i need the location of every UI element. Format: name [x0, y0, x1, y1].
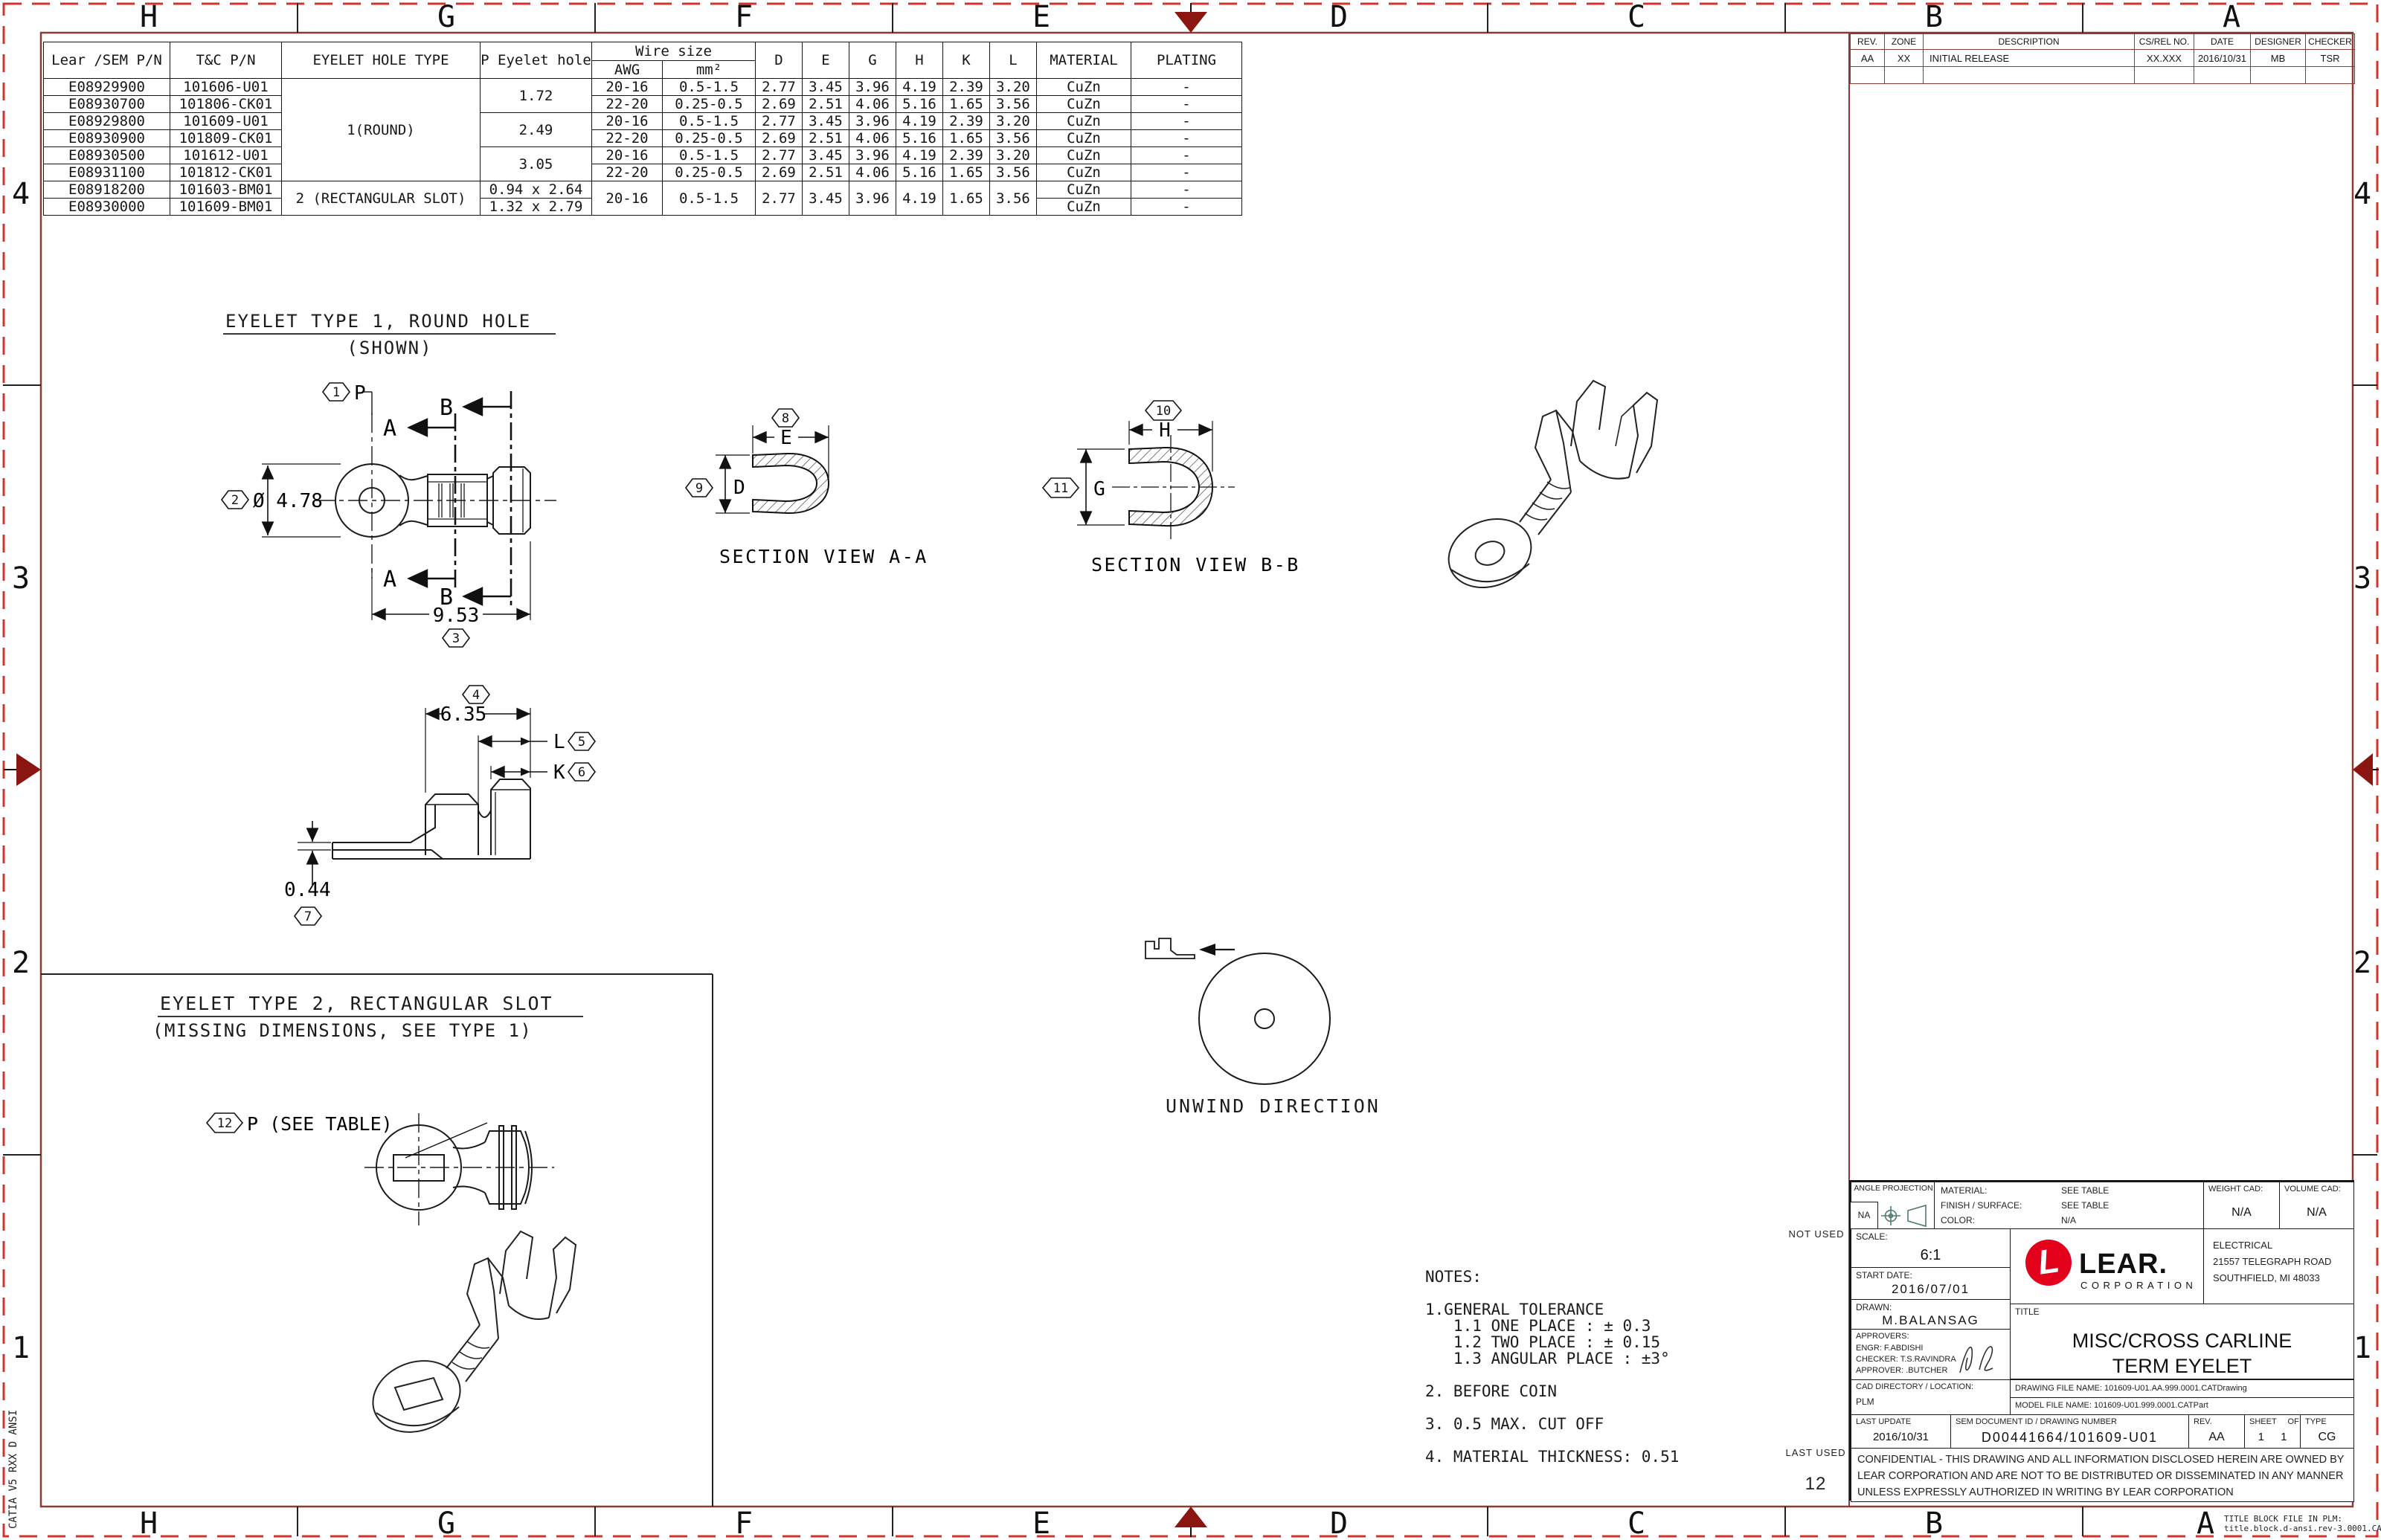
drawn-label: DRAWN: — [1856, 1302, 1892, 1312]
dim-dia-label: Ø 4.78 — [253, 490, 323, 512]
lear-brand-name: LEAR. — [2079, 1249, 2168, 1280]
type1-dimensions: A A B B P Ø 4.78 9.53 — [253, 382, 530, 627]
svg-text:8: 8 — [782, 411, 789, 426]
color-label: COLOR: — [1941, 1215, 1975, 1225]
type-cell: TYPE CG — [2300, 1414, 2354, 1449]
type1-front-view — [315, 413, 556, 579]
volume-cad-value: N/A — [2280, 1206, 2353, 1220]
svg-text:9: 9 — [695, 481, 703, 496]
svg-text:6: 6 — [578, 765, 585, 780]
type2-subtitle: (MISSING DIMENSIONS, SEE TYPE 1) — [152, 1020, 532, 1041]
not-used-flag: NOT USED — [1785, 1228, 1848, 1240]
angle-projection-na-cell: NA — [1851, 1202, 1878, 1230]
material-label: MATERIAL: — [1941, 1185, 1987, 1196]
dept-label: ELECTRICAL — [2213, 1240, 2272, 1251]
section-view-b: H G SECTION VIEW B-B — [1077, 419, 1300, 576]
section-label-b-top: B — [440, 395, 453, 421]
svg-text:4: 4 — [472, 688, 480, 703]
approver-approver: APPROVER: .BUTCHER — [1856, 1366, 1947, 1375]
material-value: SEE TABLE — [2061, 1185, 2109, 1196]
scale-cell: SCALE: 6:1 — [1851, 1228, 2011, 1268]
scale-label: SCALE: — [1856, 1231, 1888, 1242]
approver-checker: CHECKER: T.S.RAVINDRA — [1856, 1355, 1956, 1364]
dim-d-label: D — [733, 477, 745, 499]
parts-table: Lear /SEM P/N T&C P/N EYELET HOLE TYPE P… — [43, 42, 1242, 216]
type-value: CG — [2301, 1431, 2353, 1444]
address-line2: SOUTHFIELD, MI 48033 — [2213, 1272, 2320, 1283]
sheet-cell: SHEET OF 1 1 — [2244, 1414, 2301, 1449]
title-cell: TITLE MISC/CROSS CARLINE TERM EYELET — [2010, 1304, 2354, 1379]
dim-g-label: G — [1093, 478, 1105, 500]
header-row-1: Lear /SEM P/N T&C P/N EYELET HOLE TYPE P… — [44, 42, 1242, 61]
weight-cad-label: WEIGHT CAD: — [2208, 1185, 2263, 1193]
dim-l-label: L — [553, 731, 565, 753]
zone-row-right-4: 4 — [2348, 177, 2377, 211]
zone-row-left-2: 2 — [6, 946, 36, 980]
rev-cell: REV. AA — [2188, 1414, 2245, 1449]
revision-row: AA XX INITIAL RELEASE XX.XXX 2016/10/31 … — [1851, 50, 2355, 67]
sheet-value: 1 1 — [2245, 1431, 2300, 1443]
material-cell: MATERIAL: SEE TABLE FINISH / SURFACE: SE… — [1934, 1182, 2204, 1229]
type2-front-view — [364, 1113, 554, 1225]
last-used-number: 12 — [1784, 1474, 1848, 1495]
zone-col-top-g: G — [424, 0, 469, 34]
svg-text:11: 11 — [1053, 481, 1068, 496]
balloon-3: 3 — [443, 629, 469, 647]
zone-row-left-4: 4 — [6, 177, 36, 211]
balloon-11: 11 — [1043, 478, 1079, 497]
general-notes: NOTES: 1.GENERAL TOLERANCE 1.1 ONE PLACE… — [1425, 1269, 1679, 1465]
zone-col-top-d: D — [1317, 0, 1361, 34]
balloon-2: 2 — [222, 491, 248, 509]
third-angle-projection-icon — [1880, 1202, 1935, 1229]
angle-projection-label: ANGLE PROJECTION — [1851, 1184, 1935, 1193]
table-row: E08930700 101806-CK01 22-20 0.25-0.5 2.6… — [44, 96, 1242, 113]
table-row: E08931100 101812-CK01 22-20 0.25-0.5 2.6… — [44, 164, 1242, 181]
svg-text:12: 12 — [217, 1116, 232, 1131]
svg-text:3: 3 — [452, 631, 460, 646]
lear-logo-cell: L LEAR. CORPORATION — [2010, 1228, 2204, 1304]
title-block: ANGLE PROJECTION NA MATERIAL: SEE TABLE … — [1849, 1180, 2354, 1501]
zone-col-bottom-g: G — [424, 1507, 469, 1540]
last-update-value: 2016/10/31 — [1851, 1431, 1950, 1443]
zone-col-bottom-b: B — [1912, 1507, 1956, 1540]
scale-value: 6:1 — [1851, 1247, 2010, 1264]
finish-label: FINISH / SURFACE: — [1941, 1200, 2022, 1211]
balloon-9: 9 — [686, 479, 713, 497]
color-value: N/A — [2061, 1215, 2076, 1225]
drawing-file-name: DRAWING FILE NAME: 101609-U01.AA.999.000… — [2015, 1384, 2247, 1393]
cad-directory-value: PLM — [1856, 1396, 1874, 1407]
revision-header-row: REV. ZONE DESCRIPTION CS/REL NO. DATE DE… — [1851, 34, 2355, 50]
zone-col-bottom-c: C — [1614, 1507, 1659, 1540]
finish-value: SEE TABLE — [2061, 1200, 2109, 1211]
section-view-a: E D SECTION VIEW A-A — [716, 425, 928, 567]
drawing-file-cell: DRAWING FILE NAME: 101609-U01.AA.999.000… — [2010, 1379, 2354, 1398]
drawing-title-line1: MISC/CROSS CARLINE — [2011, 1330, 2353, 1353]
svg-text:7: 7 — [304, 909, 312, 924]
side-view-dimensions: 6.35 L K 0.44 — [284, 703, 565, 901]
type2-callout: P (SEE TABLE) — [247, 1113, 487, 1158]
cad-directory-cell: CAD DIRECTORY / LOCATION: PLM — [1851, 1379, 2011, 1415]
drawing-title-line2: TERM EYELET — [2011, 1355, 2353, 1378]
address-cell: ELECTRICAL 21557 TELEGRAPH ROAD SOUTHFIE… — [2203, 1228, 2354, 1304]
title-block-file-note: TITLE BLOCK FILE IN PLM: title.block.d-a… — [2224, 1514, 2381, 1533]
angle-projection-cell: ANGLE PROJECTION NA — [1851, 1182, 1935, 1229]
start-date-cell: START DATE: 2016/07/01 — [1851, 1267, 2011, 1300]
type1-side-view — [332, 779, 530, 859]
zone-row-right-2: 2 — [2348, 946, 2377, 980]
last-used-flag: LAST USED — [1784, 1447, 1848, 1458]
title-block-file-note-line1: TITLE BLOCK FILE IN PLM: — [2224, 1514, 2381, 1524]
zone-col-top-b: B — [1912, 0, 1956, 34]
lear-brand-subtitle: CORPORATION — [2080, 1280, 2197, 1291]
drawn-cell: DRAWN: M.BALANSAG — [1851, 1299, 2011, 1330]
sheet-label: SHEET OF — [2249, 1417, 2299, 1426]
table-row: E08929800 101609-U01 2.49 20-16 0.5-1.5 … — [44, 113, 1242, 130]
model-file-cell: MODEL FILE NAME: 101609-U01.999.0001.CAT… — [2010, 1397, 2354, 1415]
cad-directory-label: CAD DIRECTORY / LOCATION: — [1856, 1382, 1973, 1391]
last-update-cell: LAST UPDATE 2016/10/31 — [1851, 1414, 1951, 1449]
zone-col-top-f: F — [722, 0, 766, 34]
weight-cad-value: N/A — [2204, 1206, 2279, 1220]
start-date-label: START DATE: — [1856, 1270, 1912, 1280]
rev-label: REV. — [2194, 1417, 2212, 1426]
title-label: TITLE — [2015, 1307, 2040, 1317]
type2-title: EYELET TYPE 2, RECTANGULAR SLOT — [160, 993, 553, 1014]
zone-row-right-3: 3 — [2348, 561, 2377, 596]
svg-text:10: 10 — [1156, 404, 1171, 419]
start-date-value: 2016/07/01 — [1851, 1282, 2010, 1297]
dim-953-label: 9.53 — [433, 605, 480, 627]
table-row: E08930500 101612-U01 3.05 20-16 0.5-1.5 … — [44, 147, 1242, 164]
model-file-name: MODEL FILE NAME: 101609-U01.999.0001.CAT… — [2015, 1401, 2208, 1410]
sem-document-label: SEM DOCUMENT ID / DRAWING NUMBER — [1956, 1417, 2117, 1426]
balloon-5: 5 — [568, 732, 595, 750]
sem-document-value: D00441664/101609-U01 — [1951, 1430, 2188, 1446]
balloon-10: 10 — [1145, 401, 1181, 420]
zone-col-bottom-d: D — [1317, 1507, 1361, 1540]
zone-col-bottom-a: A — [2183, 1507, 2228, 1540]
balloon-1: 1 — [323, 383, 350, 401]
table-row: E08930900 101809-CK01 22-20 0.25-0.5 2.6… — [44, 130, 1242, 147]
zone-col-top-h: H — [126, 0, 171, 34]
title-block-file-note-line2: title.block.d-ansi.rev-3.0001.CATDrawing — [2224, 1524, 2381, 1533]
dim-p-label: P — [354, 382, 366, 405]
table-row: E08918200 101603-BM01 2 (RECTANGULAR SLO… — [44, 181, 1242, 199]
section-b-title: SECTION VIEW B-B — [1091, 554, 1300, 576]
unwind-title: UNWIND DIRECTION — [1166, 1095, 1381, 1117]
balloon-8: 8 — [772, 409, 799, 427]
section-label-a-bottom: A — [383, 567, 396, 593]
type2-isometric-view — [363, 1231, 576, 1444]
unwind-direction-view — [1145, 938, 1330, 1084]
drawn-value: M.BALANSAG — [1851, 1313, 2010, 1328]
confidential-text: CONFIDENTIAL - THIS DRAWING AND ALL INFO… — [1857, 1452, 2347, 1501]
dim-635-label: 6.35 — [440, 703, 487, 726]
address-line1: 21557 TELEGRAPH ROAD — [2213, 1256, 2331, 1267]
view-titles: EYELET TYPE 1, ROUND HOLE (SHOWN) EYELET… — [152, 311, 1381, 1117]
type1-title: EYELET TYPE 1, ROUND HOLE — [225, 311, 531, 332]
zone-row-left-3: 3 — [6, 561, 36, 596]
balloon-4: 4 — [463, 686, 489, 703]
zone-col-top-a: A — [2209, 0, 2254, 34]
revision-table: REV. ZONE DESCRIPTION CS/REL NO. DATE DE… — [1850, 33, 2355, 84]
revision-empty-row — [1851, 67, 2355, 84]
balloon-6: 6 — [568, 763, 595, 781]
approvers-label: APPROVERS: — [1856, 1332, 1909, 1341]
dim-044-label: 0.44 — [284, 879, 331, 901]
svg-text:5: 5 — [578, 735, 585, 750]
zone-col-bottom-f: F — [722, 1507, 766, 1540]
svg-text:2: 2 — [231, 493, 239, 508]
volume-cad-label: VOLUME CAD: — [2284, 1185, 2341, 1193]
approver-engr: ENGR: F.ABDISHI — [1856, 1344, 1923, 1353]
zone-col-top-c: C — [1614, 0, 1659, 34]
dim-k-label: K — [553, 761, 565, 784]
type1-isometric-view — [1439, 381, 1657, 599]
sem-document-cell: SEM DOCUMENT ID / DRAWING NUMBER D004416… — [1950, 1414, 2189, 1449]
lear-logo-icon: L — [2025, 1240, 2072, 1286]
approvers-cell: APPROVERS: ENGR: F.ABDISHI CHECKER: T.S.… — [1851, 1329, 2011, 1380]
svg-text:1: 1 — [332, 385, 340, 400]
dim-e-label: E — [780, 427, 792, 449]
dim-h-label: H — [1159, 419, 1171, 442]
volume-cad-cell: VOLUME CAD: N/A — [2279, 1182, 2354, 1229]
dim-p-table-label: P (SEE TABLE) — [247, 1113, 393, 1135]
zone-col-bottom-e: E — [1019, 1507, 1064, 1540]
section-label-a-top: A — [383, 416, 396, 442]
catia-format-label: CATIA V5 RXX D ANSI — [7, 1410, 19, 1529]
section-a-title: SECTION VIEW A-A — [719, 546, 928, 567]
zone-col-top-e: E — [1019, 0, 1064, 34]
type-label: TYPE — [2305, 1417, 2327, 1426]
drawing-sheet: A A B B P Ø 4.78 9.53 — [0, 0, 2381, 1540]
balloon-7: 7 — [295, 907, 321, 925]
zone-row-left-1: 1 — [6, 1331, 36, 1365]
approver-signature — [1954, 1336, 2008, 1379]
rev-value: AA — [2189, 1431, 2244, 1444]
last-update-label: LAST UPDATE — [1856, 1417, 1911, 1426]
type1-subtitle: (SHOWN) — [347, 338, 432, 358]
balloon-12: 12 — [207, 1113, 242, 1133]
table-row: E08929900 101606-U01 1(ROUND) 1.72 20-16… — [44, 79, 1242, 96]
weight-cad-cell: WEIGHT CAD: N/A — [2203, 1182, 2280, 1229]
zone-col-bottom-h: H — [126, 1507, 171, 1540]
confidential-cell: CONFIDENTIAL - THIS DRAWING AND ALL INFO… — [1851, 1448, 2354, 1502]
